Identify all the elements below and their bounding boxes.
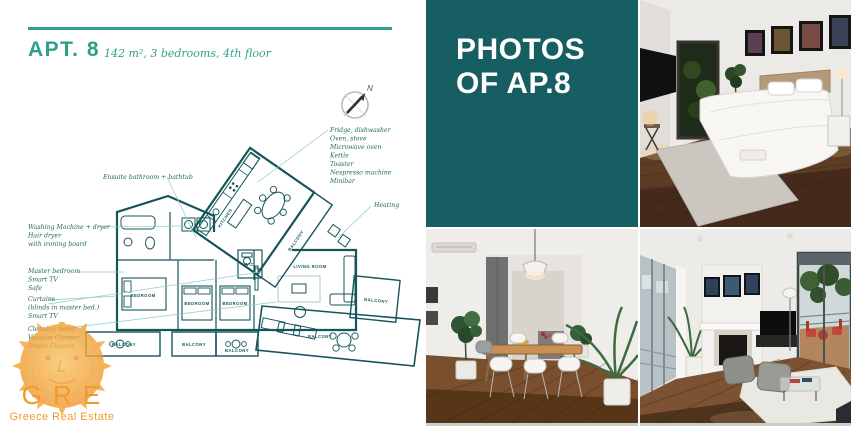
svg-text:Smart TV: Smart TV xyxy=(28,313,58,320)
svg-text:Nespresso machine: Nespresso machine xyxy=(329,170,392,177)
page-subtitle: 142 m², 3 bedrooms, 4th floor xyxy=(104,47,271,60)
annotation-laundry: Washing Machine + dryer Hair dryer with … xyxy=(27,224,111,248)
dining-frame-1 xyxy=(426,287,438,303)
room-label-balcony-3: BALCONY xyxy=(225,348,249,353)
living-window-left xyxy=(640,255,676,397)
palm-pot xyxy=(604,379,630,405)
living-tv xyxy=(756,311,800,347)
photo-living-room xyxy=(640,229,851,426)
room-label-balcony-side: BALCONY xyxy=(364,297,388,304)
room-label-balcony-2: BALCONY xyxy=(182,342,206,347)
room-label-balcony-terrace: BALCONY xyxy=(308,334,332,339)
svg-text:Smart TV: Smart TV xyxy=(28,277,58,284)
ac-vent xyxy=(432,243,476,252)
photo-dining-room xyxy=(426,229,638,426)
logo-name: Greece Real Estate xyxy=(10,411,115,423)
svg-text:(blinds in master bed.): (blinds in master bed.) xyxy=(28,305,100,312)
svg-text:Curtains: Curtains xyxy=(28,296,55,303)
svg-text:with ironing board: with ironing board xyxy=(28,241,87,248)
logo-acronym: G R E xyxy=(22,380,103,410)
photo-bedroom xyxy=(640,0,851,227)
svg-text:Kettle: Kettle xyxy=(329,153,349,160)
dining-frame-2 xyxy=(426,311,438,325)
gre-logo: G R E Greece Real Estate xyxy=(0,322,130,426)
annotation-master: Master bedroom Smart TV Safe xyxy=(27,268,80,292)
svg-text:Oven, stove: Oven, stove xyxy=(330,136,367,143)
room-label-living-room: LIVING ROOM xyxy=(293,264,326,269)
annotation-heating: Heating xyxy=(373,202,399,209)
svg-text:Master bedroom: Master bedroom xyxy=(27,268,80,275)
room-label-wc: W.C. xyxy=(245,262,256,267)
annotation-appliances: Fridge, dishwasher Oven, stove Microwave… xyxy=(329,127,392,185)
annotation-curtains: Curtains (blinds in master bed.) Smart T… xyxy=(28,296,100,320)
photos-panel-title: PHOTOS OF AP.8 xyxy=(426,0,638,100)
svg-text:Safe: Safe xyxy=(28,285,42,292)
compass-north-label: N xyxy=(367,84,373,93)
page-title: APT. 8 xyxy=(28,38,100,62)
room-label-bedroom-1: BEDROOM xyxy=(130,293,155,298)
room-label-bedroom-3: BEDROOM xyxy=(222,301,247,306)
photos-panel: PHOTOS OF AP.8 xyxy=(426,0,638,227)
svg-text:Washing Machine + dryer: Washing Machine + dryer xyxy=(28,224,111,231)
apartment-brochure-slide: APT. 8 142 m², 3 bedrooms, 4th floor N xyxy=(0,0,851,426)
svg-text:Microwave oven: Microwave oven xyxy=(329,144,381,151)
svg-text:Toaster: Toaster xyxy=(330,161,354,168)
annotation-ensuite: Ensuite bathroom + bathtub xyxy=(102,174,193,181)
room-label-bedroom-2: BEDROOM xyxy=(184,301,209,306)
svg-text:Fridge, dishwasher: Fridge, dishwasher xyxy=(329,127,392,134)
svg-text:Hair dryer: Hair dryer xyxy=(27,233,62,240)
compass-icon: N xyxy=(334,78,380,124)
svg-text:Minibar: Minibar xyxy=(329,178,356,185)
accent-rule xyxy=(28,27,392,30)
